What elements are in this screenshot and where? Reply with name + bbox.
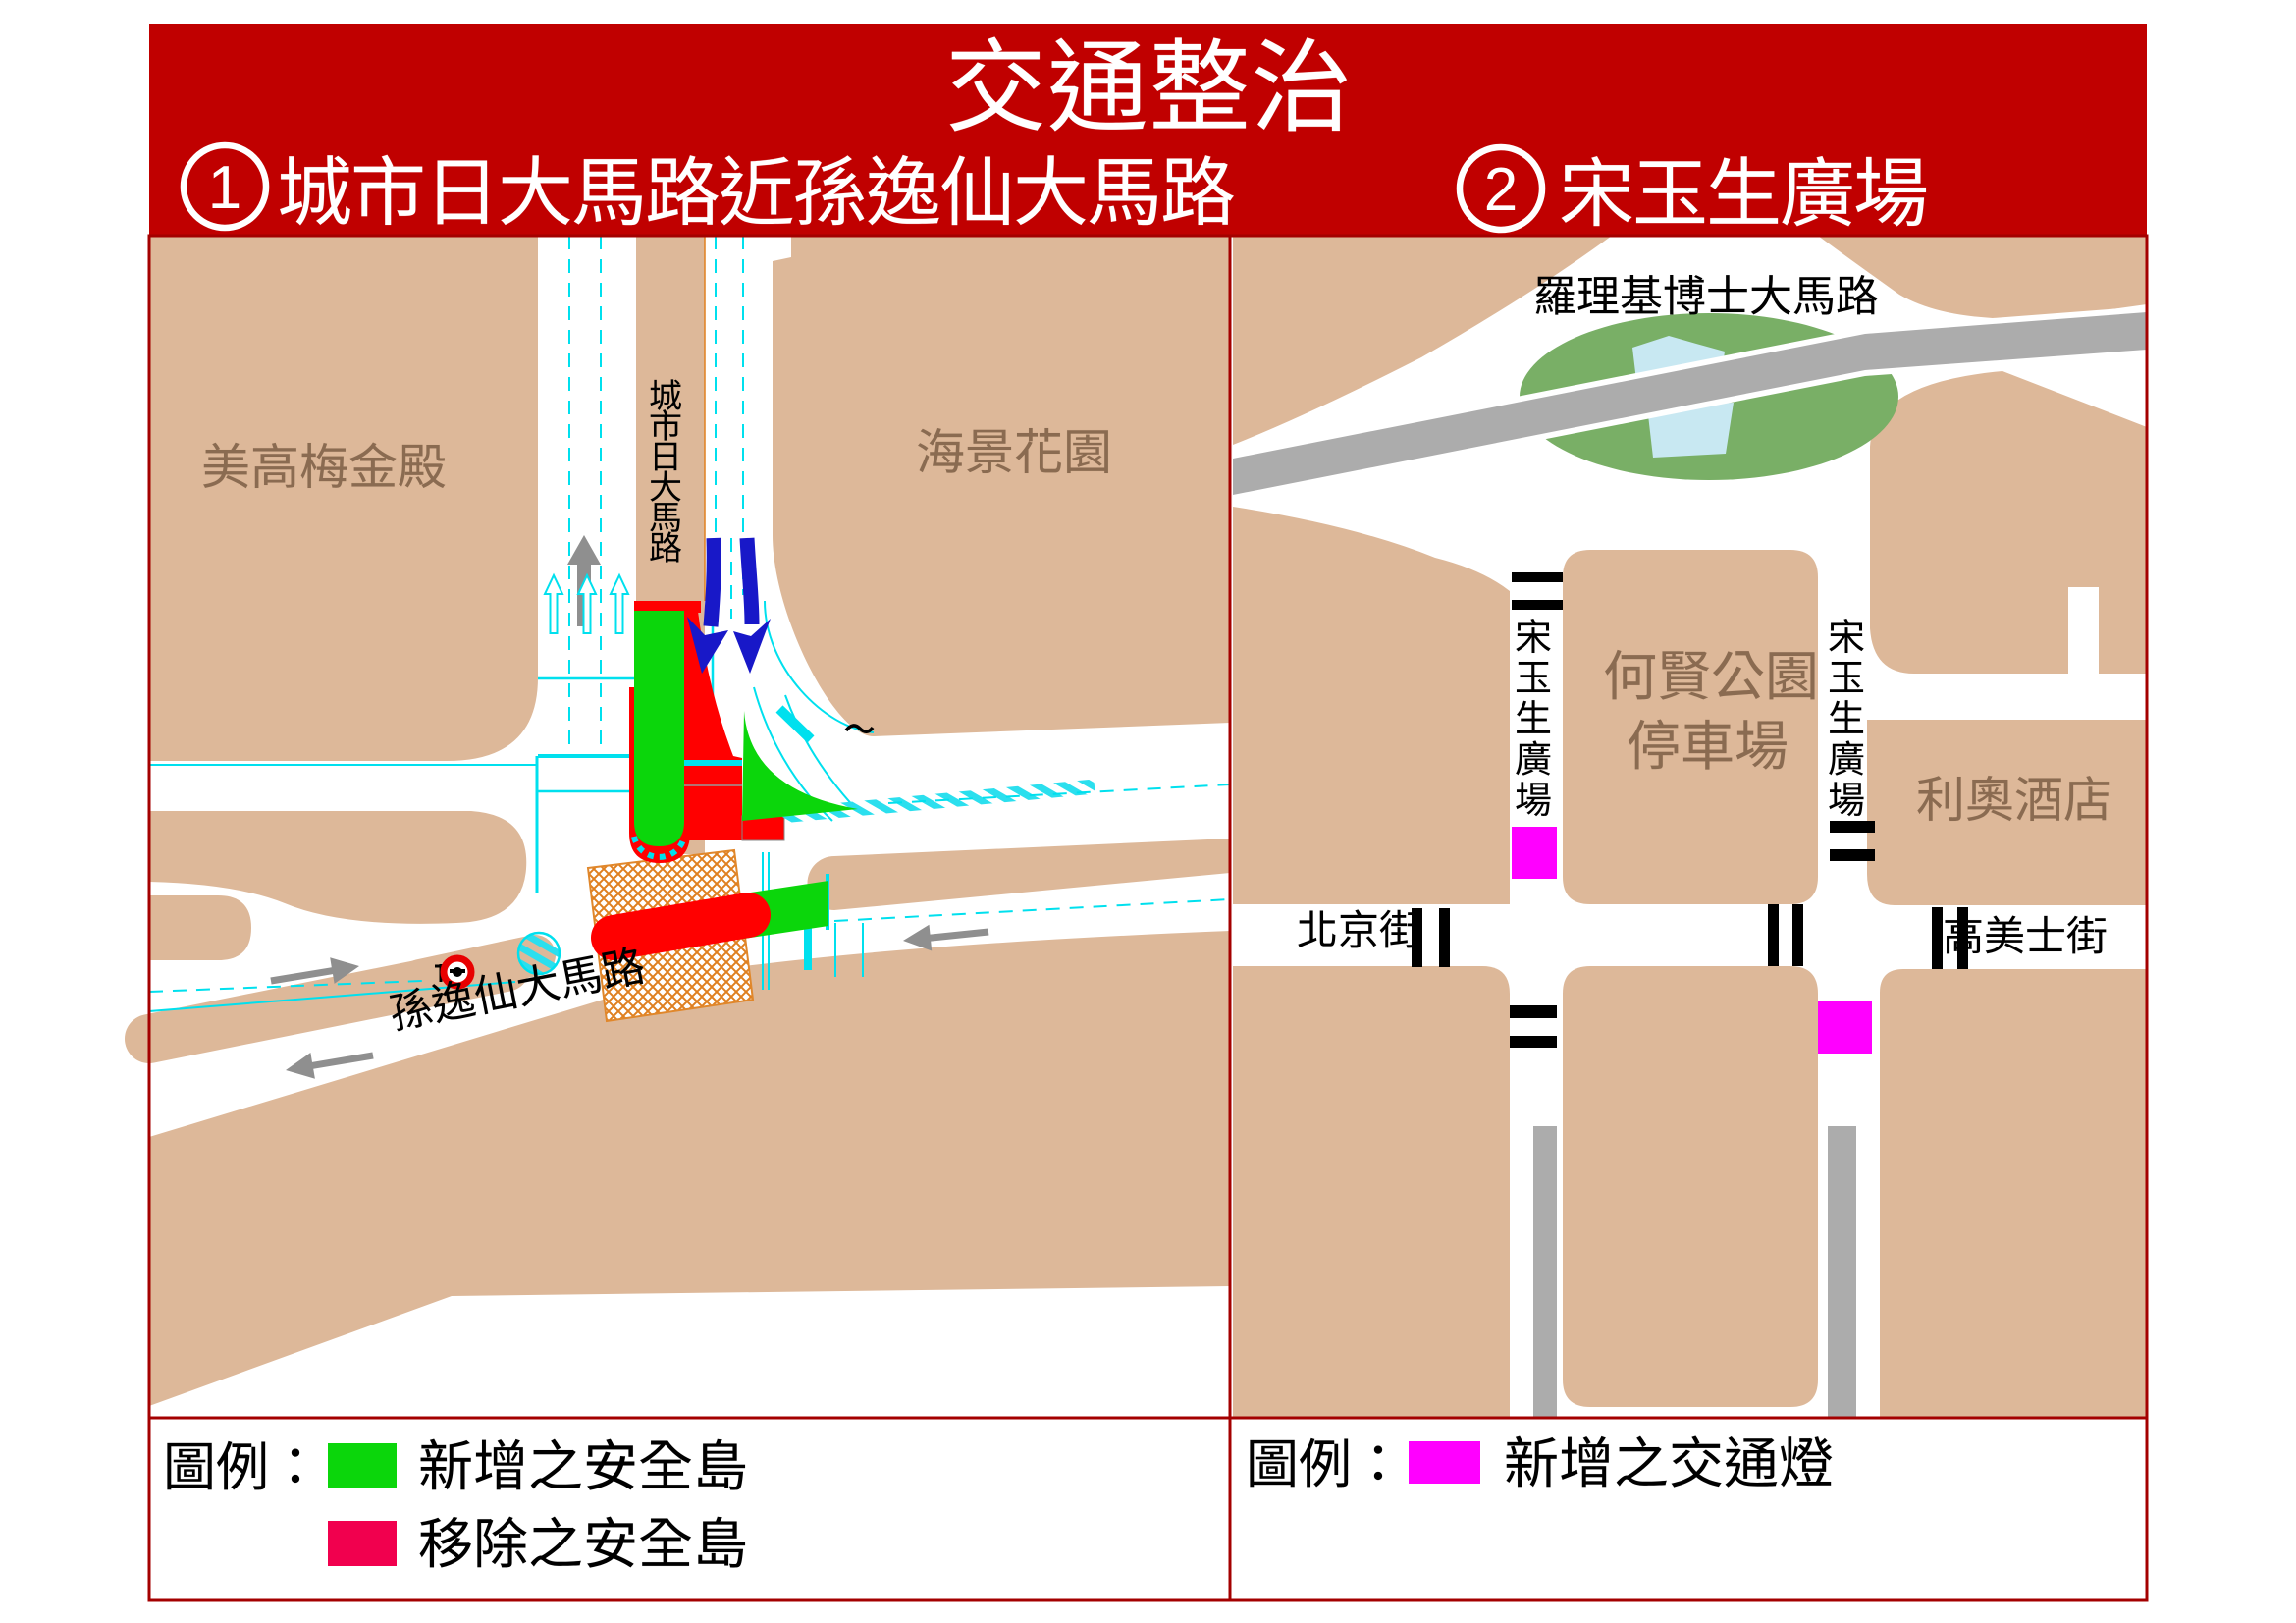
svg-text:2: 2 <box>1484 156 1518 224</box>
svg-text:1: 1 <box>208 154 241 222</box>
